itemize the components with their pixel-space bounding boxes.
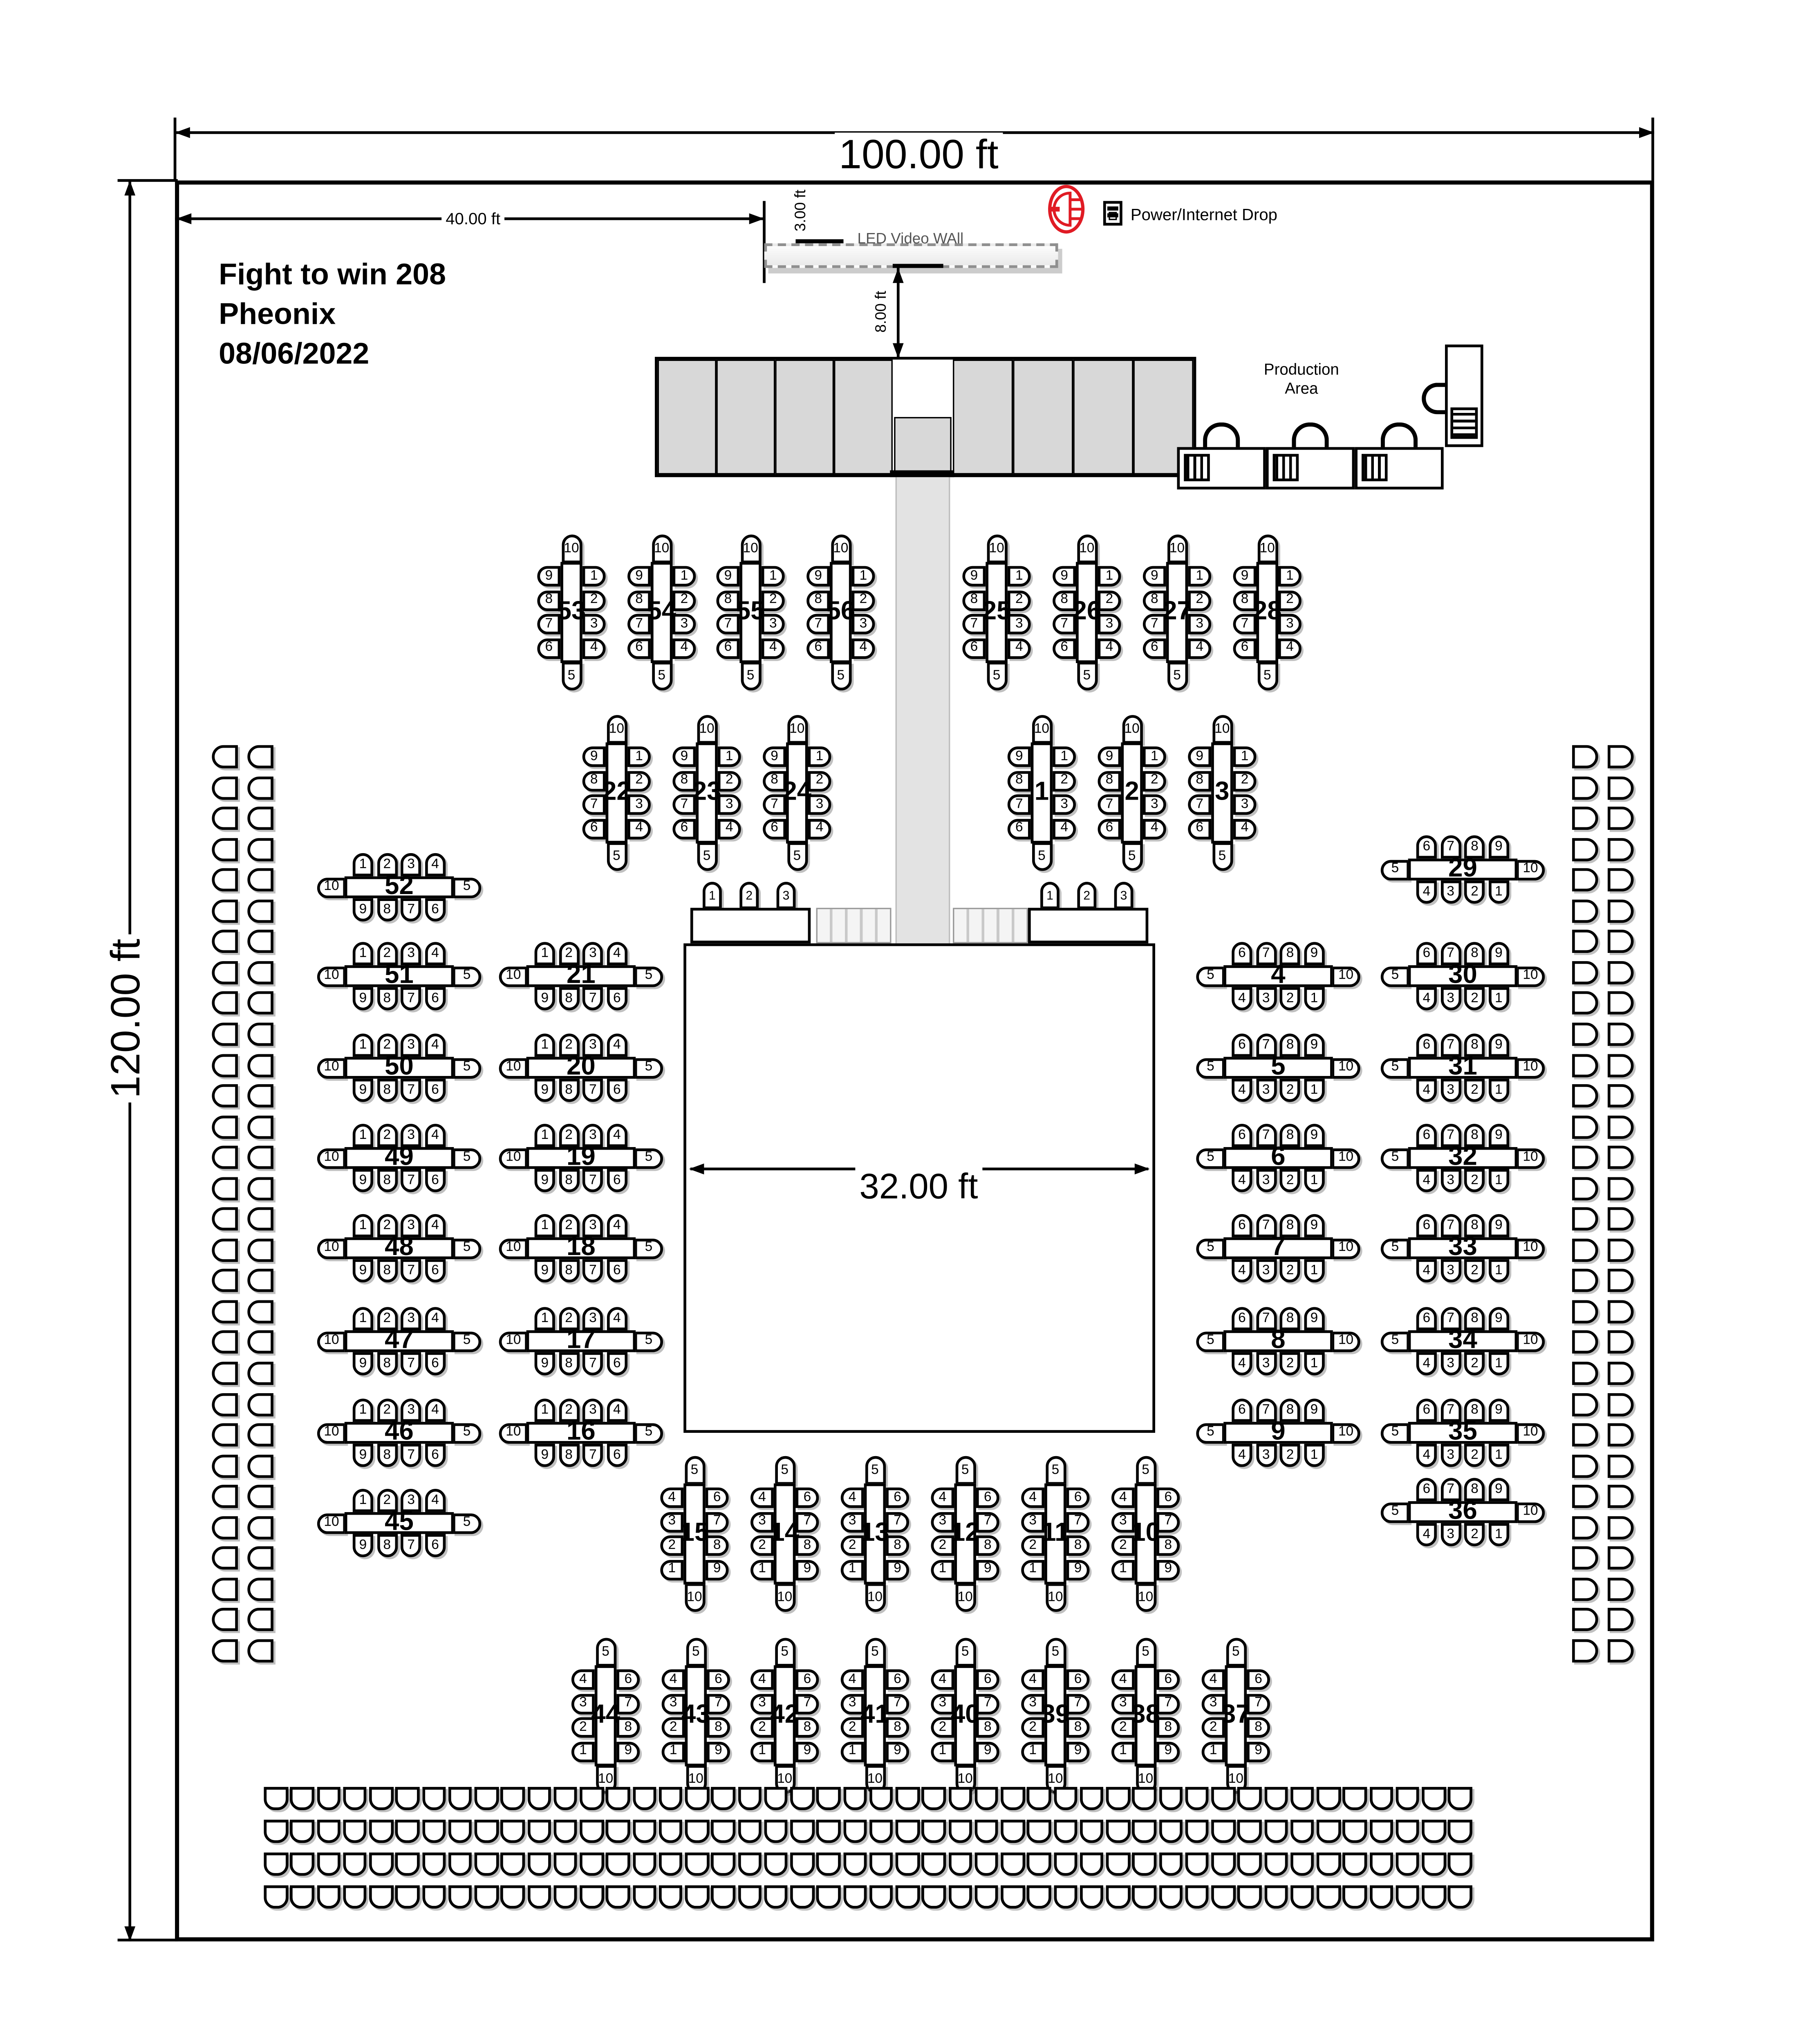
audience-chair[interactable] <box>1572 1392 1598 1416</box>
seat-chair[interactable]: 1 <box>750 1560 774 1580</box>
seat-chair[interactable]: 6 <box>1232 1214 1252 1237</box>
seat-chair[interactable]: 4 <box>627 819 651 839</box>
audience-chair[interactable] <box>1608 1547 1634 1570</box>
table-16[interactable]: 16 <box>526 1422 636 1444</box>
audience-chair[interactable] <box>247 1022 273 1046</box>
seat-chair[interactable]: 5 <box>452 1238 481 1258</box>
seat-chair[interactable]: 9 <box>806 566 830 587</box>
judge-chair[interactable]: 1 <box>703 882 722 909</box>
seat-chair[interactable]: 1 <box>1021 1741 1044 1762</box>
audience-chair[interactable] <box>475 1853 499 1876</box>
audience-chair[interactable] <box>1448 1853 1472 1876</box>
seat-chair[interactable]: 10 <box>317 1331 346 1351</box>
seat-chair[interactable]: 10 <box>1331 1331 1360 1351</box>
audience-chair[interactable] <box>247 1362 273 1385</box>
seat-chair[interactable]: 5 <box>1225 1638 1246 1667</box>
seat-chair[interactable]: 5 <box>452 1148 481 1168</box>
seat-chair[interactable]: 6 <box>706 1488 729 1508</box>
audience-chair[interactable] <box>1572 992 1598 1015</box>
audience-chair[interactable] <box>948 1820 972 1843</box>
audience-chair[interactable] <box>790 1787 814 1810</box>
seat-chair[interactable]: 10 <box>865 1583 885 1612</box>
audience-chair[interactable] <box>1027 1853 1051 1876</box>
seat-chair[interactable]: 4 <box>841 1670 864 1690</box>
audience-chair[interactable] <box>247 1084 273 1107</box>
audience-chair[interactable] <box>1080 1787 1104 1810</box>
seat-chair[interactable]: 4 <box>750 1670 774 1690</box>
audience-chair[interactable] <box>606 1787 630 1810</box>
audience-chair[interactable] <box>422 1787 446 1810</box>
seat-chair[interactable]: 4 <box>582 638 606 659</box>
audience-chair[interactable] <box>922 1853 946 1876</box>
seat-chair[interactable]: 10 <box>1031 715 1052 744</box>
audience-chair[interactable] <box>212 1146 238 1169</box>
seat-chair[interactable]: 4 <box>1416 1352 1437 1376</box>
audience-chair[interactable] <box>1264 1820 1288 1843</box>
seat-chair[interactable]: 4 <box>931 1670 954 1690</box>
audience-chair[interactable] <box>1608 961 1634 984</box>
seat-chair[interactable]: 3 <box>1053 795 1076 815</box>
seat-chair[interactable]: 9 <box>353 1259 373 1282</box>
seat-chair[interactable]: 4 <box>607 1124 627 1147</box>
seat-chair[interactable]: 10 <box>317 1148 346 1168</box>
table-17[interactable]: 17 <box>526 1330 636 1352</box>
audience-chair[interactable] <box>212 1115 238 1139</box>
audience-chair[interactable] <box>212 838 238 861</box>
audience-chair[interactable] <box>1422 1853 1446 1876</box>
seat-chair[interactable]: 1 <box>1488 1352 1509 1376</box>
audience-chair[interactable] <box>553 1885 578 1909</box>
seat-chair[interactable]: 9 <box>795 1560 819 1580</box>
seat-chair[interactable]: 9 <box>535 1444 555 1467</box>
seat-chair[interactable]: 6 <box>616 1670 640 1690</box>
audience-chair[interactable] <box>395 1820 419 1843</box>
audience-chair[interactable] <box>1608 745 1634 769</box>
audience-chair[interactable] <box>422 1820 446 1843</box>
seat-chair[interactable]: 9 <box>1304 1399 1324 1422</box>
audience-chair[interactable] <box>264 1853 288 1876</box>
audience-chair[interactable] <box>475 1820 499 1843</box>
audience-chair[interactable] <box>1001 1787 1025 1810</box>
seat-chair[interactable]: 4 <box>425 1399 445 1422</box>
seat-chair[interactable]: 6 <box>795 1670 819 1690</box>
seat-chair[interactable]: 1 <box>852 566 875 587</box>
table-54[interactable]: 54 <box>651 562 673 663</box>
audience-chair[interactable] <box>685 1820 709 1843</box>
seat-chair[interactable]: 10 <box>1331 1148 1360 1168</box>
audience-chair[interactable] <box>632 1853 656 1876</box>
audience-chair[interactable] <box>212 1177 238 1200</box>
judge-chair[interactable]: 2 <box>1077 882 1096 909</box>
audience-chair[interactable] <box>1290 1820 1314 1843</box>
seat-chair[interactable]: 6 <box>763 819 786 839</box>
audience-chair[interactable] <box>1448 1885 1472 1909</box>
audience-chair[interactable] <box>247 1146 273 1169</box>
audience-chair[interactable] <box>737 1820 762 1843</box>
audience-chair[interactable] <box>816 1787 840 1810</box>
seat-chair[interactable]: 5 <box>1196 1238 1225 1258</box>
seat-chair[interactable]: 4 <box>1278 638 1301 659</box>
seat-chair[interactable]: 1 <box>1488 1079 1509 1102</box>
seat-chair[interactable]: 5 <box>652 662 672 690</box>
audience-chair[interactable] <box>1608 1177 1634 1200</box>
audience-chair[interactable] <box>1080 1820 1104 1843</box>
seat-chair[interactable]: 1 <box>535 1307 555 1330</box>
audience-chair[interactable] <box>264 1787 288 1810</box>
seat-chair[interactable]: 1 <box>1304 1352 1324 1376</box>
judge-chair[interactable]: 3 <box>777 882 796 909</box>
audience-chair[interactable] <box>247 1053 273 1077</box>
seat-chair[interactable]: 1 <box>535 1214 555 1237</box>
audience-chair[interactable] <box>1572 1146 1598 1169</box>
seat-chair[interactable]: 5 <box>561 662 582 690</box>
table-55[interactable]: 55 <box>739 562 762 663</box>
seat-chair[interactable]: 6 <box>607 1259 627 1282</box>
seat-chair[interactable]: 9 <box>976 1560 999 1580</box>
audience-chair[interactable] <box>212 961 238 984</box>
audience-chair[interactable] <box>1132 1853 1156 1876</box>
seat-chair[interactable]: 5 <box>1031 842 1052 871</box>
audience-chair[interactable] <box>212 1639 238 1663</box>
seat-chair[interactable]: 5 <box>1196 1148 1225 1168</box>
seat-chair[interactable]: 10 <box>1516 1331 1545 1351</box>
table-41[interactable]: 41 <box>864 1665 886 1766</box>
seat-chair[interactable]: 10 <box>499 1331 528 1351</box>
audience-chair[interactable] <box>1185 1853 1209 1876</box>
seat-chair[interactable]: 10 <box>684 1583 705 1612</box>
audience-chair[interactable] <box>1608 1238 1634 1262</box>
table-30[interactable]: 30 <box>1408 965 1518 987</box>
seat-chair[interactable]: 5 <box>1381 1058 1409 1078</box>
audience-chair[interactable] <box>369 1853 393 1876</box>
audience-chair[interactable] <box>1158 1853 1183 1876</box>
seat-chair[interactable]: 9 <box>1143 566 1166 587</box>
seat-chair[interactable]: 5 <box>787 842 807 871</box>
table-37[interactable]: 37 <box>1225 1665 1247 1766</box>
table-13[interactable]: 13 <box>864 1484 886 1585</box>
table-24[interactable]: 24 <box>786 742 808 843</box>
audience-chair[interactable] <box>1572 961 1598 984</box>
audience-chair[interactable] <box>247 1578 273 1601</box>
audience-chair[interactable] <box>659 1885 683 1909</box>
audience-chair[interactable] <box>212 1578 238 1601</box>
seat-chair[interactable]: 5 <box>1381 859 1409 880</box>
seat-chair[interactable]: 9 <box>886 1741 909 1762</box>
audience-chair[interactable] <box>475 1885 499 1909</box>
audience-chair[interactable] <box>1001 1820 1025 1843</box>
audience-chair[interactable] <box>247 1331 273 1354</box>
seat-chair[interactable]: 6 <box>425 1444 445 1467</box>
table-21[interactable]: 21 <box>526 965 636 987</box>
seat-chair[interactable]: 6 <box>1233 638 1257 659</box>
seat-chair[interactable]: 6 <box>707 1670 730 1690</box>
seat-chair[interactable]: 9 <box>1233 566 1257 587</box>
seat-chair[interactable]: 9 <box>1156 1560 1180 1580</box>
seat-chair[interactable]: 4 <box>662 1670 685 1690</box>
seat-chair[interactable]: 7 <box>1188 795 1211 815</box>
audience-chair[interactable] <box>212 745 238 769</box>
seat-chair[interactable]: 4 <box>1232 1079 1252 1102</box>
seat-chair[interactable]: 7 <box>1098 795 1121 815</box>
audience-chair[interactable] <box>1572 1084 1598 1107</box>
seat-chair[interactable]: 6 <box>1232 942 1252 965</box>
seat-chair[interactable]: 1 <box>662 1741 685 1762</box>
seat-chair[interactable]: 5 <box>634 1148 663 1168</box>
seat-chair[interactable]: 5 <box>685 1638 706 1667</box>
audience-chair[interactable] <box>1343 1820 1367 1843</box>
audience-chair[interactable] <box>737 1885 762 1909</box>
seat-chair[interactable]: 4 <box>1232 1259 1252 1282</box>
seat-chair[interactable]: 5 <box>1381 1423 1409 1443</box>
seat-chair[interactable]: 9 <box>353 1169 373 1192</box>
seat-chair[interactable]: 10 <box>1516 1238 1545 1258</box>
audience-chair[interactable] <box>422 1885 446 1909</box>
audience-chair[interactable] <box>922 1820 946 1843</box>
audience-chair[interactable] <box>1572 1115 1598 1139</box>
seat-chair[interactable]: 9 <box>1304 1214 1324 1237</box>
seat-chair[interactable]: 3 <box>1021 1512 1044 1532</box>
audience-chair[interactable] <box>1396 1787 1420 1810</box>
table-15[interactable]: 15 <box>683 1484 706 1585</box>
audience-chair[interactable] <box>737 1853 762 1876</box>
audience-chair[interactable] <box>247 1516 273 1539</box>
seat-chair[interactable]: 10 <box>317 1238 346 1258</box>
seat-chair[interactable]: 1 <box>931 1560 954 1580</box>
table-42[interactable]: 42 <box>774 1665 796 1766</box>
seat-chair[interactable]: 9 <box>1488 942 1509 965</box>
seat-chair[interactable]: 6 <box>806 638 830 659</box>
seat-chair[interactable]: 5 <box>452 1513 481 1533</box>
seat-chair[interactable]: 5 <box>1381 1238 1409 1258</box>
seat-chair[interactable]: 9 <box>763 746 786 767</box>
seat-chair[interactable]: 4 <box>1111 1670 1135 1690</box>
audience-chair[interactable] <box>247 1423 273 1447</box>
audience-chair[interactable] <box>422 1853 446 1876</box>
seat-chair[interactable]: 9 <box>1304 942 1324 965</box>
audience-chair[interactable] <box>711 1787 735 1810</box>
audience-chair[interactable] <box>1211 1853 1235 1876</box>
seat-chair[interactable]: 1 <box>1488 1259 1509 1282</box>
audience-chair[interactable] <box>1396 1853 1420 1876</box>
seat-chair[interactable]: 9 <box>706 1560 729 1580</box>
seat-chair[interactable]: 10 <box>1045 1583 1066 1612</box>
seat-chair[interactable]: 6 <box>1053 638 1076 659</box>
audience-chair[interactable] <box>212 1485 238 1508</box>
seat-chair[interactable]: 9 <box>535 987 555 1011</box>
audience-chair[interactable] <box>1343 1787 1367 1810</box>
table-46[interactable]: 46 <box>345 1422 454 1444</box>
audience-chair[interactable] <box>247 992 273 1015</box>
audience-chair[interactable] <box>247 776 273 799</box>
audience-chair[interactable] <box>1608 1454 1634 1477</box>
seat-chair[interactable]: 4 <box>1416 1444 1437 1467</box>
audience-chair[interactable] <box>659 1820 683 1843</box>
seat-chair[interactable]: 5 <box>1045 1638 1066 1667</box>
audience-chair[interactable] <box>1106 1787 1130 1810</box>
audience-chair[interactable] <box>1106 1853 1130 1876</box>
seat-chair[interactable]: 5 <box>595 1638 616 1667</box>
audience-chair[interactable] <box>212 1454 238 1477</box>
audience-chair[interactable] <box>501 1787 525 1810</box>
audience-chair[interactable] <box>1572 1608 1598 1632</box>
table-34[interactable]: 34 <box>1408 1330 1518 1352</box>
seat-chair[interactable]: 5 <box>1381 1331 1409 1351</box>
seat-chair[interactable]: 6 <box>1143 638 1166 659</box>
audience-chair[interactable] <box>580 1853 604 1876</box>
audience-chair[interactable] <box>1185 1787 1209 1810</box>
audience-chair[interactable] <box>1608 1053 1634 1077</box>
audience-chair[interactable] <box>1369 1853 1393 1876</box>
seat-chair[interactable]: 6 <box>607 1079 627 1102</box>
audience-chair[interactable] <box>1027 1787 1051 1810</box>
seat-chair[interactable]: 3 <box>1143 795 1166 815</box>
seat-chair[interactable]: 5 <box>697 842 717 871</box>
seat-chair[interactable]: 10 <box>317 1423 346 1443</box>
seat-chair[interactable]: 1 <box>1304 1444 1324 1467</box>
audience-chair[interactable] <box>212 1084 238 1107</box>
seat-chair[interactable]: 6 <box>1232 1399 1252 1422</box>
audience-chair[interactable] <box>580 1820 604 1843</box>
audience-chair[interactable] <box>1608 838 1634 861</box>
seat-chair[interactable]: 10 <box>1516 1148 1545 1168</box>
seat-chair[interactable]: 4 <box>1008 638 1031 659</box>
seat-chair[interactable]: 1 <box>750 1741 774 1762</box>
audience-chair[interactable] <box>1608 1269 1634 1293</box>
seat-chair[interactable]: 1 <box>353 1399 373 1422</box>
seat-chair[interactable]: 4 <box>425 1124 445 1147</box>
seat-chair[interactable]: 4 <box>852 638 875 659</box>
seat-chair[interactable]: 10 <box>955 1583 975 1612</box>
seat-chair[interactable]: 5 <box>1136 1638 1156 1667</box>
seat-chair[interactable]: 8 <box>1098 771 1121 791</box>
seat-chair[interactable]: 4 <box>1232 1444 1252 1467</box>
seat-chair[interactable]: 4 <box>425 1033 445 1057</box>
audience-chair[interactable] <box>1572 1053 1598 1077</box>
seat-chair[interactable]: 1 <box>1304 1079 1324 1102</box>
seat-chair[interactable]: 5 <box>1167 662 1187 690</box>
audience-chair[interactable] <box>212 776 238 799</box>
audience-chair[interactable] <box>1608 1115 1634 1139</box>
table-1[interactable]: 1 <box>1031 742 1053 843</box>
audience-chair[interactable] <box>290 1820 314 1843</box>
seat-chair[interactable]: 4 <box>1232 1352 1252 1376</box>
seat-chair[interactable]: 9 <box>1066 1741 1090 1762</box>
audience-chair[interactable] <box>212 899 238 923</box>
seat-chair[interactable]: 6 <box>425 1169 445 1192</box>
audience-chair[interactable] <box>264 1885 288 1909</box>
audience-chair[interactable] <box>247 1238 273 1262</box>
table-19[interactable]: 19 <box>526 1147 636 1169</box>
table-48[interactable]: 48 <box>345 1237 454 1260</box>
seat-chair[interactable]: 5 <box>1196 966 1225 986</box>
seat-chair[interactable]: 6 <box>1232 1307 1252 1330</box>
seat-chair[interactable]: 10 <box>1516 1502 1545 1522</box>
audience-chair[interactable] <box>948 1787 972 1810</box>
seat-chair[interactable]: 4 <box>762 638 785 659</box>
seat-chair[interactable]: 4 <box>1188 638 1211 659</box>
seat-chair[interactable]: 1 <box>1143 746 1166 767</box>
audience-chair[interactable] <box>448 1820 472 1843</box>
table-40[interactable]: 40 <box>954 1665 976 1766</box>
audience-chair[interactable] <box>290 1885 314 1909</box>
audience-chair[interactable] <box>711 1820 735 1843</box>
audience-chair[interactable] <box>1132 1820 1156 1843</box>
table-7[interactable]: 7 <box>1223 1237 1333 1260</box>
seat-chair[interactable]: 1 <box>1304 1169 1324 1192</box>
seat-chair[interactable]: 1 <box>1111 1560 1135 1580</box>
seat-chair[interactable]: 1 <box>353 942 373 965</box>
seat-chair[interactable]: 5 <box>1196 1423 1225 1443</box>
seat-chair[interactable]: 10 <box>1331 966 1360 986</box>
seat-chair[interactable]: 10 <box>499 1423 528 1443</box>
seat-chair[interactable]: 1 <box>353 1033 373 1057</box>
seat-chair[interactable]: 6 <box>425 987 445 1011</box>
audience-chair[interactable] <box>1572 1300 1598 1323</box>
seat-chair[interactable]: 6 <box>1416 942 1437 965</box>
seat-chair[interactable]: 6 <box>607 1169 627 1192</box>
seat-chair[interactable]: 1 <box>1053 746 1076 767</box>
audience-chair[interactable] <box>212 1331 238 1354</box>
seat-chair[interactable]: 5 <box>955 1638 975 1667</box>
seat-chair[interactable]: 6 <box>1416 835 1437 858</box>
seat-chair[interactable]: 1 <box>535 1399 555 1422</box>
audience-chair[interactable] <box>553 1853 578 1876</box>
audience-chair[interactable] <box>247 1608 273 1632</box>
seat-chair[interactable]: 9 <box>1304 1033 1324 1057</box>
audience-chair[interactable] <box>816 1885 840 1909</box>
audience-chair[interactable] <box>606 1820 630 1843</box>
seat-chair[interactable]: 4 <box>1111 1488 1135 1508</box>
seat-chair[interactable]: 10 <box>787 715 807 744</box>
audience-chair[interactable] <box>1448 1820 1472 1843</box>
seat-chair[interactable]: 2 <box>1021 1535 1044 1556</box>
audience-chair[interactable] <box>395 1853 419 1876</box>
audience-chair[interactable] <box>711 1885 735 1909</box>
table-51[interactable]: 51 <box>345 965 454 987</box>
seat-chair[interactable]: 10 <box>317 1513 346 1533</box>
audience-chair[interactable] <box>896 1853 920 1876</box>
seat-chair[interactable]: 10 <box>1212 715 1232 744</box>
audience-chair[interactable] <box>369 1885 393 1909</box>
seat-chair[interactable]: 5 <box>740 662 761 690</box>
audience-chair[interactable] <box>395 1885 419 1909</box>
seat-chair[interactable]: 5 <box>1257 662 1277 690</box>
seat-chair[interactable]: 6 <box>1416 1478 1437 1501</box>
seat-chair[interactable]: 9 <box>1188 746 1211 767</box>
audience-chair[interactable] <box>1080 1853 1104 1876</box>
audience-chair[interactable] <box>1185 1885 1209 1909</box>
audience-chair[interactable] <box>1238 1820 1262 1843</box>
seat-chair[interactable]: 10 <box>499 1148 528 1168</box>
seat-chair[interactable]: 1 <box>353 1307 373 1330</box>
audience-chair[interactable] <box>1422 1820 1446 1843</box>
seat-chair[interactable]: 4 <box>1416 881 1437 904</box>
seat-chair[interactable]: 5 <box>452 877 481 897</box>
audience-chair[interactable] <box>1106 1885 1130 1909</box>
audience-chair[interactable] <box>1572 807 1598 830</box>
audience-chair[interactable] <box>685 1787 709 1810</box>
seat-chair[interactable]: 6 <box>1156 1670 1180 1690</box>
seat-chair[interactable]: 6 <box>1416 1033 1437 1057</box>
seat-chair[interactable]: 1 <box>571 1741 595 1762</box>
seat-chair[interactable]: 5 <box>1381 1148 1409 1168</box>
audience-chair[interactable] <box>1608 1578 1634 1601</box>
seat-chair[interactable]: 6 <box>672 819 696 839</box>
audience-chair[interactable] <box>1608 1362 1634 1385</box>
seat-chair[interactable]: 9 <box>353 898 373 921</box>
audience-chair[interactable] <box>1608 899 1634 923</box>
seat-chair[interactable]: 1 <box>627 746 651 767</box>
